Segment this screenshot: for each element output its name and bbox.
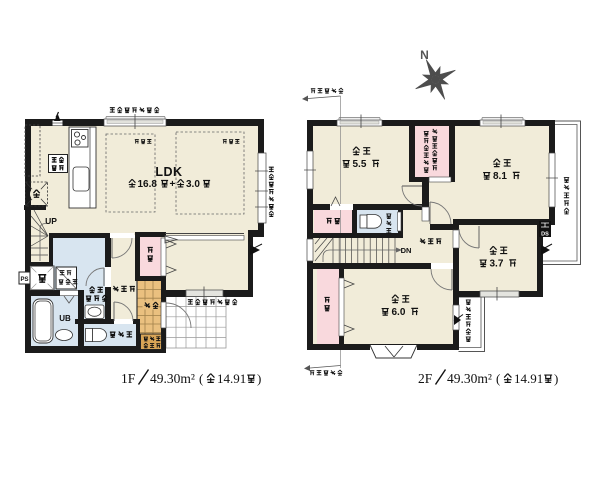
svg-text:14.91: 14.91 — [217, 371, 246, 386]
svg-text:N: N — [420, 48, 429, 62]
svg-text:+: + — [170, 179, 176, 190]
svg-text:(: ( — [496, 371, 500, 386]
svg-text:LDK: LDK — [155, 165, 182, 179]
svg-text:5.5: 5.5 — [353, 159, 367, 170]
svg-text:UB: UB — [59, 314, 71, 323]
svg-text:49.30m²: 49.30m² — [150, 371, 195, 386]
svg-text:PS: PS — [20, 277, 28, 283]
svg-text:3.7: 3.7 — [490, 259, 504, 270]
svg-text:8.1: 8.1 — [493, 171, 507, 182]
svg-text:2F: 2F — [418, 371, 433, 386]
svg-text:DS: DS — [541, 232, 549, 238]
svg-text:UP: UP — [45, 216, 57, 226]
svg-text:14.91: 14.91 — [514, 371, 543, 386]
svg-text:49.30m²: 49.30m² — [447, 371, 492, 386]
svg-text:): ) — [554, 371, 558, 386]
svg-text:1F: 1F — [121, 371, 136, 386]
svg-text:16.8: 16.8 — [138, 179, 158, 190]
svg-text:(: ( — [199, 371, 203, 386]
svg-text:DN: DN — [401, 246, 412, 255]
svg-text:3.0: 3.0 — [186, 179, 200, 190]
svg-text:6.0: 6.0 — [392, 307, 406, 318]
svg-text:): ) — [257, 371, 261, 386]
